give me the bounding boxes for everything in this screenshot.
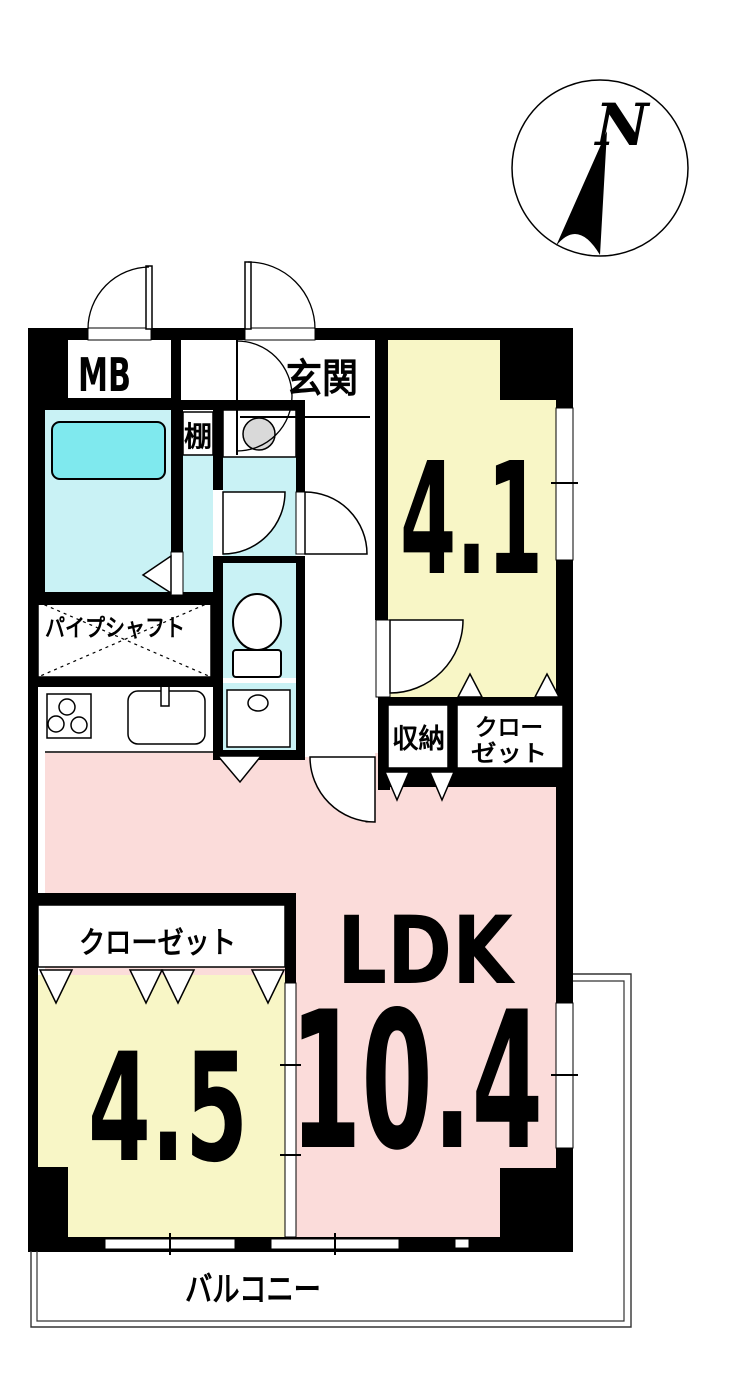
- wall-hall-41: [375, 335, 388, 620]
- bath-door-opening: [171, 552, 183, 595]
- toilet-tank: [233, 650, 281, 677]
- mb-label: MB: [78, 348, 131, 402]
- window-bottom-notch: [455, 1239, 469, 1248]
- pipe-shaft-label: パイプシャフト: [45, 614, 185, 642]
- washroom-strip-fill: [183, 455, 213, 592]
- entrance-label: 玄関: [286, 356, 358, 402]
- closet-4-1-label-line1: クロー: [475, 715, 543, 741]
- wall-kitchen-basin: [213, 687, 223, 757]
- wall-closet45-top: [28, 893, 296, 905]
- balcony-label: バルコニー: [185, 1270, 321, 1310]
- storage-label: 収納: [392, 723, 445, 755]
- wall-closet41-top: [378, 697, 563, 705]
- hallway-fill: [305, 415, 375, 757]
- floor-plan-drawing: N MB 玄関 棚 パイプシャフト 収納 クロー ゼット クローゼット 4.1 …: [0, 0, 736, 1390]
- shelf-label: 棚: [184, 420, 212, 453]
- washing-machine-icon: [243, 418, 275, 450]
- entrance-door-opening: [245, 328, 315, 340]
- wall-mb-right: [171, 335, 181, 410]
- faucet-icon: [161, 686, 169, 706]
- wall-washroom-mid: [213, 455, 223, 490]
- stove-burner-1: [59, 699, 75, 715]
- bathtub-icon: [52, 422, 165, 479]
- wall-pipeshaft-right: [211, 595, 221, 687]
- closet-4-5-label: クローゼット: [79, 926, 236, 961]
- entrance-door-arc: [248, 262, 315, 329]
- mb-door-opening: [88, 328, 151, 340]
- pillar-bottom-left: [38, 1167, 68, 1237]
- closet-4-1-label-line2: ゼット: [471, 741, 547, 767]
- pillar-top-right: [500, 335, 573, 400]
- stove-burner-2: [48, 716, 64, 732]
- washbasin-bowl: [248, 695, 268, 711]
- wall-left-lower: [28, 603, 38, 1252]
- wall-bath-right: [171, 408, 183, 553]
- toilet-icon: [233, 594, 281, 650]
- floor-plan-page: N MB 玄関 棚 パイプシャフト 収納 クロー ゼット クローゼット 4.1 …: [0, 0, 736, 1390]
- room-4-1-size-label: 4.1: [400, 429, 543, 610]
- ldk-size-label: 10.4: [290, 971, 543, 1192]
- entrance-door-leaf: [245, 262, 251, 329]
- wall-shelf-washer: [213, 410, 223, 455]
- room-4-5-size-label: 4.5: [88, 1022, 248, 1196]
- wall-storage-closet-divider: [448, 697, 457, 770]
- wall-kitchen-top: [28, 677, 221, 687]
- mb-door-arc: [88, 267, 149, 329]
- pillar-top-left: [28, 328, 68, 410]
- room41-door-opening: [376, 620, 390, 697]
- mb-door-leaf: [146, 266, 152, 329]
- wall-bath-bottom: [28, 592, 213, 605]
- wall-basin-hall: [296, 683, 305, 757]
- washroom-door-leaf: [296, 492, 305, 554]
- wall-toilet-top: [213, 556, 305, 563]
- stove-burner-3: [71, 717, 87, 733]
- wall-washroom-hall-upper: [296, 410, 305, 492]
- compass-north-label: N: [593, 91, 650, 159]
